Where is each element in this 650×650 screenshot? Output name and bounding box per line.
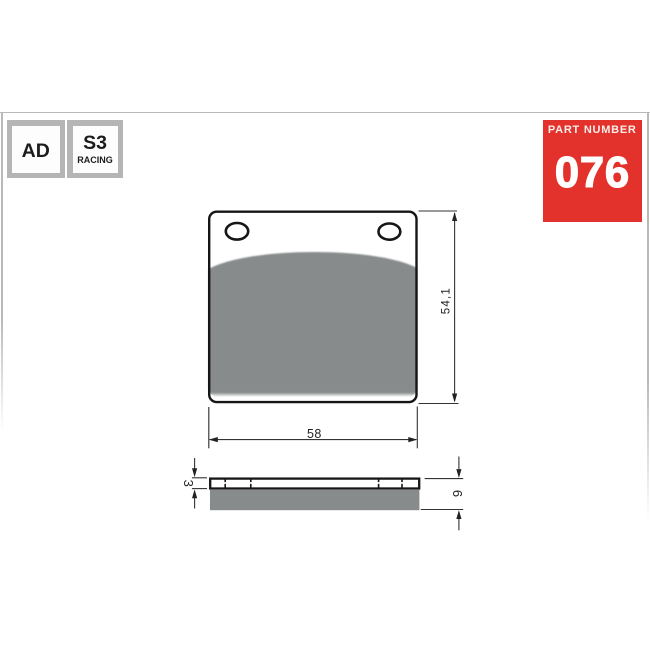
svg-text:54,1: 54,1 (441, 287, 453, 314)
svg-text:9: 9 (450, 490, 465, 497)
svg-text:58: 58 (307, 427, 322, 441)
svg-text:3: 3 (181, 480, 196, 487)
